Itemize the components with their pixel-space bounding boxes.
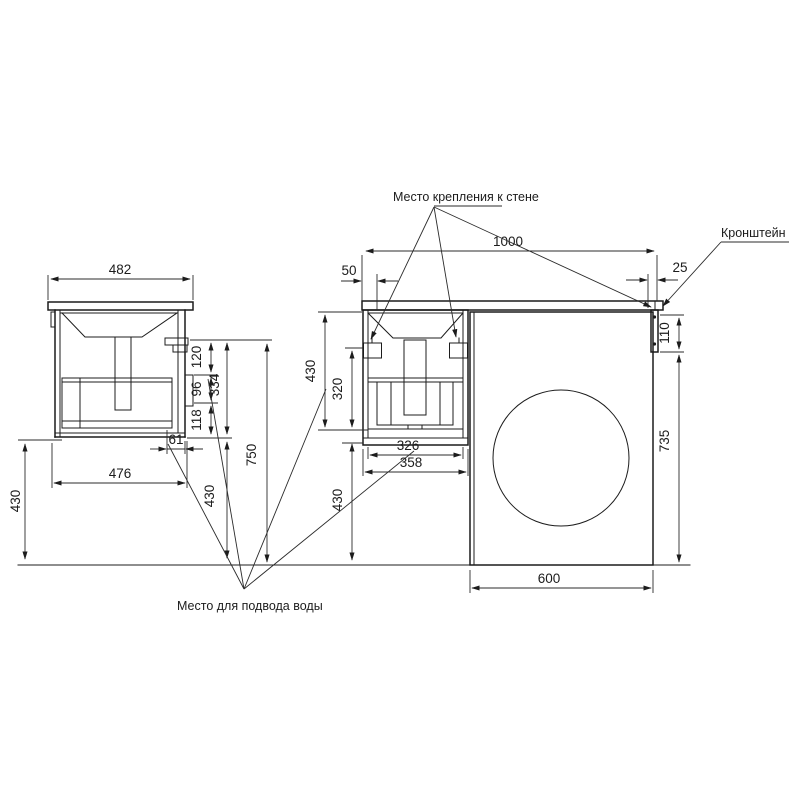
- bracket-screw-top: [653, 315, 656, 318]
- dim-wall-bracket-height: 110: [657, 322, 672, 344]
- vanity-washer-drawing: 482 430 476 61 120 96 118 334 430 750 10…: [0, 0, 800, 800]
- front-countertop: [362, 301, 663, 310]
- dim-front-cabinet-height: 430: [303, 360, 318, 383]
- front-mount-bracket-right: [450, 338, 468, 358]
- side-countertop: [48, 302, 193, 310]
- front-mount-bracket-left: [364, 338, 382, 358]
- dim-front-bracket-to-bottom: 320: [330, 378, 345, 401]
- dim-side-countertop-width: 482: [109, 262, 132, 277]
- bracket-screw-bottom: [653, 342, 656, 345]
- front-view-cabinet: [362, 301, 663, 445]
- dim-side-wall-mount-height: 750: [244, 444, 259, 467]
- dimensions: 482 430 476 61 120 96 118 334 430 750 10…: [8, 234, 688, 588]
- dim-front-left-offset: 50: [341, 263, 356, 278]
- bracket-label: Кронштейн: [721, 226, 786, 240]
- dim-front-cabinet-width: 358: [400, 455, 423, 470]
- side-drawer: [62, 378, 172, 428]
- dim-washer-width: 600: [538, 571, 561, 586]
- front-sink-basin: [368, 313, 463, 338]
- annotation-wall-mount: Место крепления к стене: [371, 190, 651, 339]
- side-sink-basin: [60, 313, 177, 337]
- extension-lines: [18, 255, 684, 593]
- dim-side-rail-to-bottom: 118: [189, 409, 204, 431]
- dim-side-rail-zone: 96: [189, 381, 204, 396]
- side-view-cabinet: [48, 302, 193, 437]
- dim-side-cabinet-width: 476: [109, 466, 132, 481]
- dim-side-floor-clearance-right: 430: [202, 485, 217, 508]
- dim-front-right-offset: 25: [672, 260, 687, 275]
- dim-side-floor-clearance-left: 430: [8, 490, 23, 513]
- dim-side-bracket-to-rail: 120: [189, 346, 204, 369]
- side-drain-pipe: [115, 337, 131, 410]
- dim-side-back-offset: 61: [168, 432, 183, 447]
- front-drawer: [368, 378, 463, 429]
- technical-drawing-page: 482 430 476 61 120 96 118 334 430 750 10…: [0, 0, 800, 800]
- water-supply-label: Место для подвода воды: [177, 599, 323, 613]
- washer-door: [493, 390, 629, 526]
- washing-machine: [470, 312, 653, 565]
- wall-mount-label: Место крепления к стене: [393, 190, 539, 204]
- dim-bracket-to-floor: 735: [657, 430, 672, 453]
- dim-front-floor-clearance: 430: [330, 489, 345, 512]
- dim-front-drawer-width: 326: [397, 438, 420, 453]
